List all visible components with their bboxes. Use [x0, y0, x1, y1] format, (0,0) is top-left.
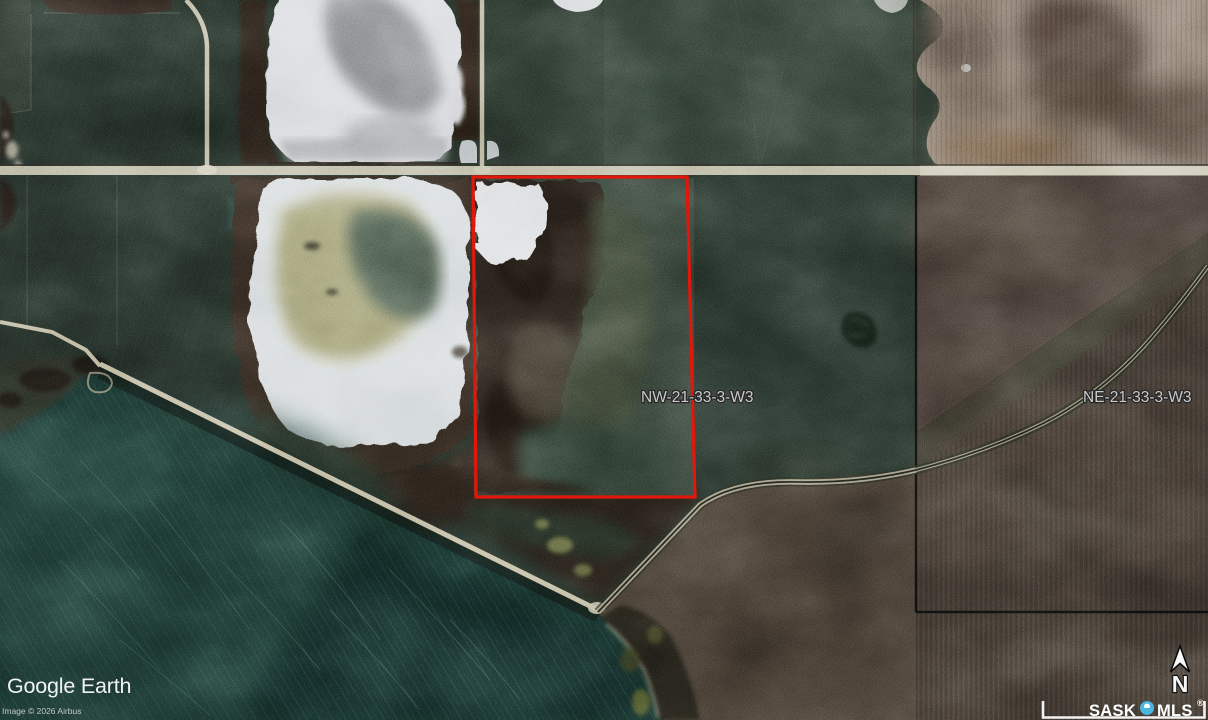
svg-text:®: ® — [1197, 698, 1204, 708]
svg-text:Google Earth: Google Earth — [7, 674, 131, 698]
svg-text:MLS: MLS — [1157, 702, 1193, 720]
svg-text:NW-21-33-3-W3: NW-21-33-3-W3 — [641, 389, 754, 406]
svg-text:SASK: SASK — [1089, 702, 1136, 720]
svg-text:N: N — [1172, 671, 1189, 697]
svg-text:NE-21-33-3-W3: NE-21-33-3-W3 — [1083, 389, 1192, 406]
svg-text:Image © 2026 Airbus: Image © 2026 Airbus — [2, 706, 82, 716]
